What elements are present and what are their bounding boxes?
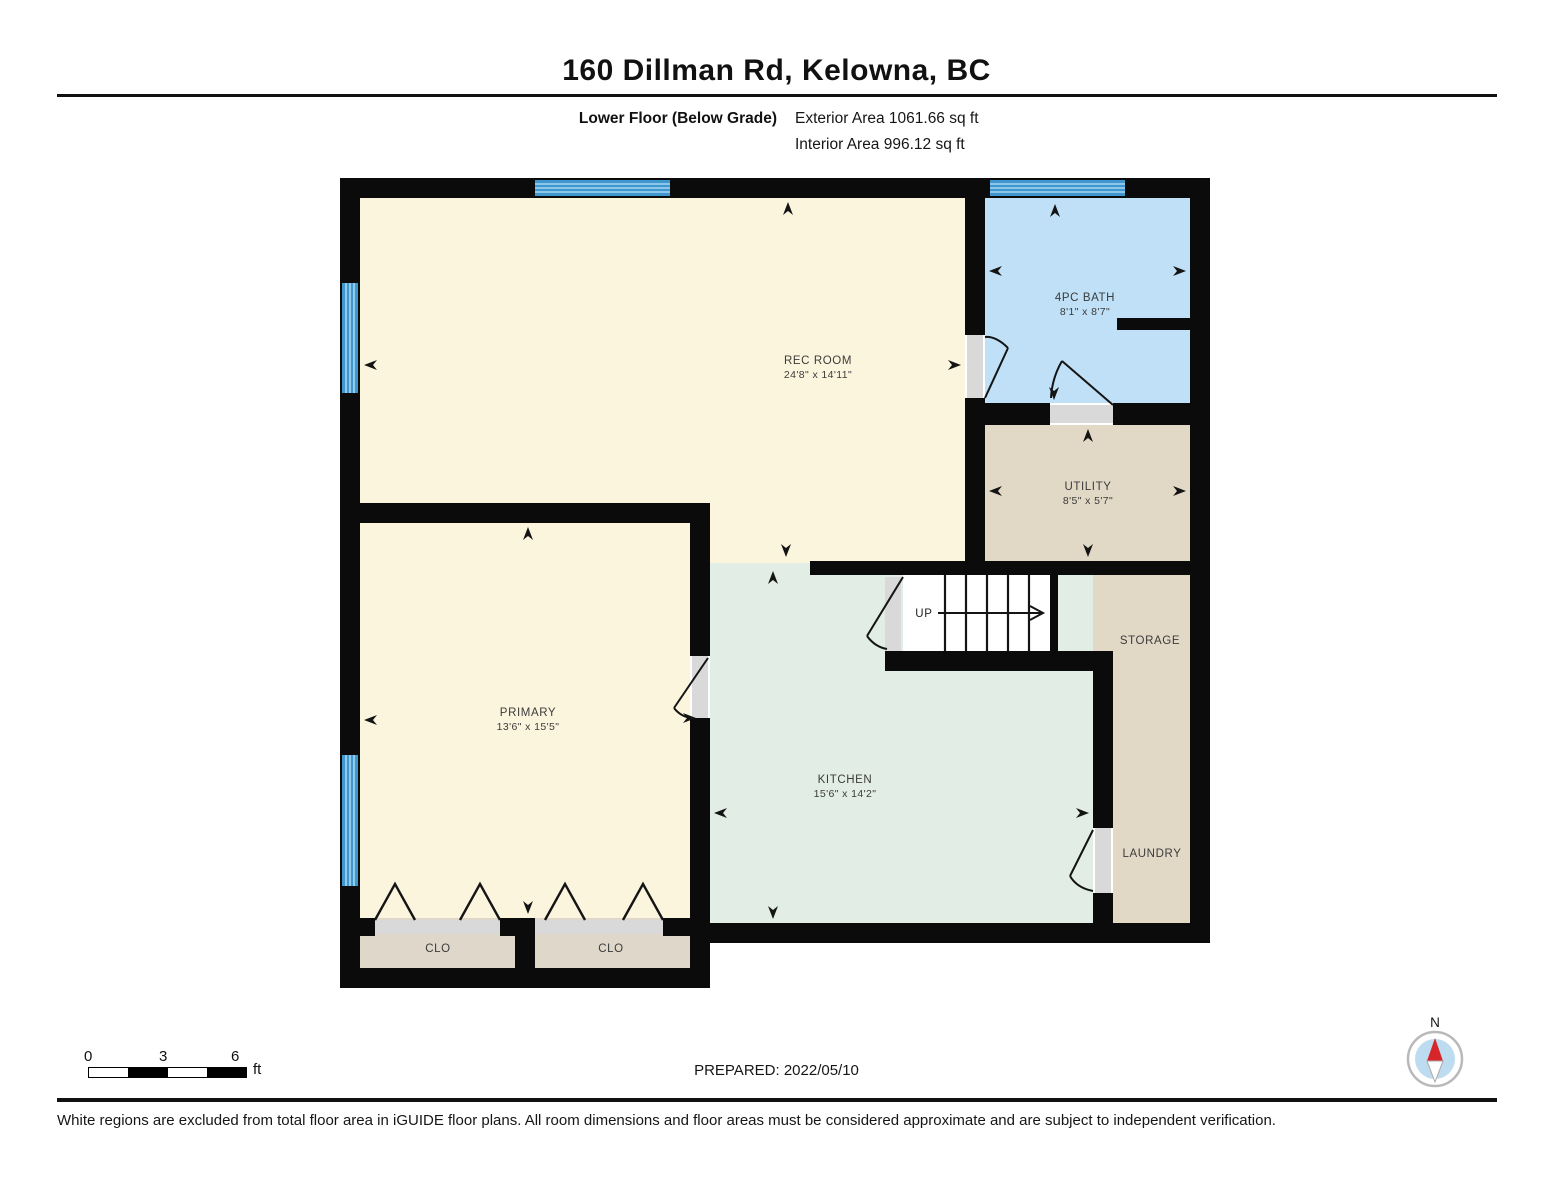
bath-dims: 8'1" x 8'7": [1060, 306, 1110, 318]
rec-room-label: REC ROOM: [784, 355, 852, 367]
footer-divider: [57, 1098, 1497, 1102]
compass-north-label: N: [1430, 1015, 1440, 1030]
rec-room-dims: 24'8" x 14'11": [784, 369, 852, 381]
exterior-area: Exterior Area 1061.66 sq ft: [795, 110, 979, 128]
primary-label: PRIMARY: [500, 707, 556, 719]
stairs-label: UP: [915, 608, 933, 620]
closet2-label: CLO: [598, 943, 623, 955]
stairs: UP: [903, 575, 1050, 651]
prepared-date: PREPARED: 2022/05/10: [0, 1062, 1553, 1079]
storage-label: STORAGE: [1120, 635, 1180, 647]
primary-dims: 13'6" x 15'5": [497, 721, 560, 733]
bath-label: 4PC BATH: [1055, 292, 1115, 304]
laundry-label: LAUNDRY: [1123, 848, 1182, 860]
header-divider: [57, 94, 1497, 97]
closet1-label: CLO: [425, 943, 450, 955]
compass: N: [1403, 1014, 1467, 1088]
floor-plan: UP REC ROOM: [340, 178, 1210, 990]
laundry-area: [1113, 651, 1190, 923]
floor-label: Lower Floor (Below Grade): [395, 110, 777, 128]
utility-dims: 8'5" x 5'7": [1063, 495, 1113, 507]
page-title: 160 Dillman Rd, Kelowna, BC: [0, 54, 1553, 88]
kitchen-label: KITCHEN: [818, 774, 873, 786]
disclaimer-text: White regions are excluded from total fl…: [57, 1112, 1497, 1129]
kitchen-dims: 15'6" x 14'2": [814, 788, 877, 800]
utility-label: UTILITY: [1064, 481, 1111, 493]
interior-area: Interior Area 996.12 sq ft: [795, 136, 965, 154]
utility-area: [985, 425, 1190, 561]
